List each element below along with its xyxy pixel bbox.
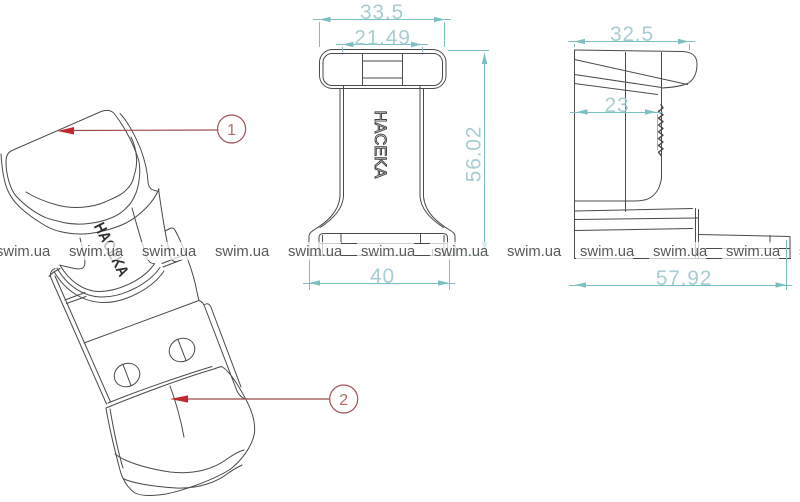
svg-text:23: 23 [605,94,630,117]
svg-text:57.92: 57.92 [656,267,713,290]
svg-text:swim.ua: swim.ua [434,244,489,260]
svg-text:33.5: 33.5 [360,1,404,24]
svg-text:40: 40 [370,265,395,288]
svg-text:2: 2 [339,392,348,409]
svg-text:swim.ua: swim.ua [142,244,197,260]
svg-text:swim.ua: swim.ua [653,244,708,260]
svg-text:swim.ua: swim.ua [507,244,562,260]
svg-text:56.02: 56.02 [463,126,486,183]
svg-text:swim.ua: swim.ua [288,244,343,260]
svg-text:swim.ua: swim.ua [215,244,270,260]
svg-text:HACEKA: HACEKA [371,111,389,179]
svg-text:swim.ua: swim.ua [726,244,781,260]
svg-text:21.49: 21.49 [354,27,411,50]
svg-text:swim.ua: swim.ua [361,244,416,260]
svg-text:swim.ua: swim.ua [69,244,124,260]
svg-text:swim.ua: swim.ua [0,244,51,260]
svg-text:1: 1 [227,122,236,139]
svg-text:swim.ua: swim.ua [580,244,635,260]
svg-text:32.5: 32.5 [610,23,654,46]
